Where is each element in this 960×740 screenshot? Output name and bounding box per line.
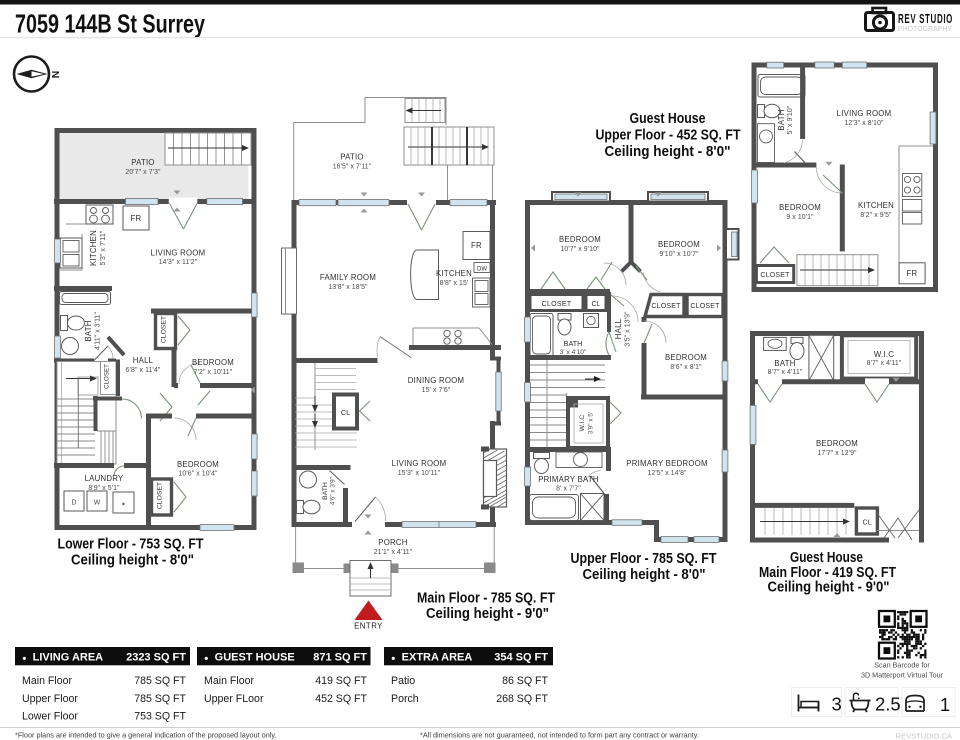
svg-text:KITCHEN: KITCHEN xyxy=(436,269,472,278)
svg-text:9 x 10'1": 9 x 10'1" xyxy=(786,214,814,221)
svg-text:LIVING ROOM: LIVING ROOM xyxy=(151,249,206,258)
svg-text:CLOSET: CLOSET xyxy=(161,316,168,343)
svg-text:N: N xyxy=(49,71,61,79)
svg-text:3: 3 xyxy=(832,694,842,715)
svg-text:12'5" x 14'8": 12'5" x 14'8" xyxy=(647,470,687,477)
svg-text:CLOSET: CLOSET xyxy=(651,303,681,310)
svg-text:CLOSET: CLOSET xyxy=(542,301,572,308)
svg-text:354 SQ FT: 354 SQ FT xyxy=(494,652,548,664)
svg-text:785 SQ FT: 785 SQ FT xyxy=(134,675,186,687)
svg-text:8'7" x 4'11": 8'7" x 4'11" xyxy=(768,369,803,376)
svg-text:3'9" x 5': 3'9" x 5' xyxy=(588,412,595,434)
svg-text:Main Floor: Main Floor xyxy=(22,675,73,687)
svg-text:6'8" x 11'4": 6'8" x 11'4" xyxy=(126,367,161,374)
svg-text:5'3" x 7'11": 5'3" x 7'11" xyxy=(100,230,107,265)
svg-text:BEDROOM: BEDROOM xyxy=(658,240,700,249)
svg-text:Ceiling height - 8'0": Ceiling height - 8'0" xyxy=(605,144,731,160)
svg-text:Upper Floor - 785 SQ. FT: Upper Floor - 785 SQ. FT xyxy=(571,551,717,567)
svg-text:13'8" x 18'5": 13'8" x 18'5" xyxy=(328,284,368,291)
svg-text:FAMILY ROOM: FAMILY ROOM xyxy=(320,273,376,282)
svg-text:7059 144B St Surrey: 7059 144B St Surrey xyxy=(15,9,205,39)
svg-text:D: D xyxy=(71,500,76,507)
svg-text:86 SQ FT: 86 SQ FT xyxy=(502,675,548,687)
svg-text:PATIO: PATIO xyxy=(131,158,155,167)
svg-text:KITCHEN: KITCHEN xyxy=(858,201,894,210)
svg-text:LIVING ROOM: LIVING ROOM xyxy=(392,459,447,468)
svg-text:HALL: HALL xyxy=(133,356,154,365)
svg-text:Ceiling height - 8'0": Ceiling height - 8'0" xyxy=(583,567,706,583)
svg-text:4'6" x 3'9": 4'6" x 3'9" xyxy=(330,477,337,505)
svg-text:Patio: Patio xyxy=(391,675,415,687)
svg-text:CL: CL xyxy=(592,301,601,308)
svg-text:LAUNDRY: LAUNDRY xyxy=(85,474,124,483)
svg-text:419 SQ FT: 419 SQ FT xyxy=(315,675,367,687)
svg-text:PRIMARY BEDROOM: PRIMARY BEDROOM xyxy=(626,459,707,468)
svg-text:Ceiling height - 9'0": Ceiling height - 9'0" xyxy=(426,606,549,622)
svg-text:ENTRY: ENTRY xyxy=(354,622,383,631)
svg-text:DINING ROOM: DINING ROOM xyxy=(408,376,464,385)
svg-text:Lower Floor: Lower Floor xyxy=(22,711,78,723)
svg-text:BEDROOM: BEDROOM xyxy=(779,203,821,212)
svg-text:PRIMARY BATH: PRIMARY BATH xyxy=(538,475,599,484)
svg-text:FR: FR xyxy=(471,241,482,250)
svg-text:BEDROOM: BEDROOM xyxy=(816,439,858,448)
svg-text:FR: FR xyxy=(131,214,142,223)
svg-text:9'10" x 10'7": 9'10" x 10'7" xyxy=(659,251,699,258)
svg-text:Main Floor: Main Floor xyxy=(204,675,255,687)
svg-text:CLOSET: CLOSET xyxy=(104,364,111,389)
svg-text:REVSTUDIO.CA: REVSTUDIO.CA xyxy=(896,732,952,740)
svg-text:Porch: Porch xyxy=(391,693,419,705)
svg-text:1: 1 xyxy=(940,694,950,715)
svg-text:8'6" x 8'1": 8'6" x 8'1" xyxy=(670,364,702,371)
svg-text:15'3" x 10'11": 15'3" x 10'11" xyxy=(398,470,441,477)
svg-text:Lower Floor - 753 SQ. FT: Lower Floor - 753 SQ. FT xyxy=(58,537,204,553)
svg-text:CL: CL xyxy=(863,520,872,527)
svg-text:2.5: 2.5 xyxy=(875,694,901,715)
svg-text:5' x 9'10": 5' x 9'10" xyxy=(787,105,794,134)
svg-text:PORCH: PORCH xyxy=(378,538,407,547)
svg-text:PATIO: PATIO xyxy=(340,153,364,162)
svg-text:CLOSET: CLOSET xyxy=(690,303,720,310)
svg-text:8'7" x 4'11": 8'7" x 4'11" xyxy=(867,360,902,367)
svg-text:W.I.C: W.I.C xyxy=(579,415,586,432)
svg-text:10'7" x 9'10": 10'7" x 9'10" xyxy=(560,246,600,253)
svg-text:Ceiling height - 9'0": Ceiling height - 9'0" xyxy=(768,580,890,596)
svg-text:CLOSET: CLOSET xyxy=(157,482,164,509)
svg-text:REV STUDIO: REV STUDIO xyxy=(898,12,953,26)
svg-text:8' x 7'7": 8' x 7'7" xyxy=(556,486,581,493)
svg-text:452 SQ FT: 452 SQ FT xyxy=(315,693,367,705)
svg-text:16'5" x 7'11": 16'5" x 7'11" xyxy=(333,164,372,171)
svg-text:● LIVING AREA: ● LIVING AREA xyxy=(22,652,103,664)
svg-text:Ceiling height - 8'0": Ceiling height - 8'0" xyxy=(71,553,194,569)
svg-text:12'3" x 8'10": 12'3" x 8'10" xyxy=(844,120,884,127)
svg-text:LIVING ROOM: LIVING ROOM xyxy=(837,109,892,118)
svg-text:Main Floor - 785 SQ. FT: Main Floor - 785 SQ. FT xyxy=(417,591,555,607)
svg-text:Upper Floor: Upper Floor xyxy=(22,693,78,705)
svg-text:4'11" x 3'11": 4'11" x 3'11" xyxy=(95,312,102,351)
svg-text:10'6" x 10'4": 10'6" x 10'4" xyxy=(178,471,218,478)
svg-text:*All dimensions are not guaran: *All dimensions are not guaranteed, not … xyxy=(420,731,699,740)
svg-text:785 SQ FT: 785 SQ FT xyxy=(134,693,186,705)
svg-text:268 SQ FT: 268 SQ FT xyxy=(496,693,548,705)
svg-text:PHOTOGRAPHY: PHOTOGRAPHY xyxy=(898,26,952,33)
svg-text:FR: FR xyxy=(907,269,918,278)
svg-text:DW: DW xyxy=(477,266,487,272)
svg-text:15' x 7'6": 15' x 7'6" xyxy=(422,387,451,394)
svg-text:753 SQ FT: 753 SQ FT xyxy=(134,711,186,723)
svg-text:HALL: HALL xyxy=(614,318,623,339)
svg-text:Upper FLoor: Upper FLoor xyxy=(204,693,264,705)
svg-text:CL: CL xyxy=(341,408,350,417)
svg-text:BATH: BATH xyxy=(84,320,93,341)
svg-text:8'2" x 9'5": 8'2" x 9'5" xyxy=(860,212,892,219)
svg-text:BATH: BATH xyxy=(777,109,786,130)
svg-text:● EXTRA AREA: ● EXTRA AREA xyxy=(391,652,472,664)
svg-text:Upper Floor - 452 SQ. FT: Upper Floor - 452 SQ. FT xyxy=(596,128,741,144)
svg-text:8'8" x 15': 8'8" x 15' xyxy=(440,280,469,287)
svg-text:20'7" x 7'3": 20'7" x 7'3" xyxy=(125,169,161,176)
svg-text:3'5" x 13'9": 3'5" x 13'9" xyxy=(625,311,632,347)
svg-text:KITCHEN: KITCHEN xyxy=(89,230,98,266)
svg-text:17'7" x 12'9": 17'7" x 12'9" xyxy=(817,450,857,457)
svg-text:21'1" x 4'11": 21'1" x 4'11" xyxy=(374,549,413,556)
svg-text:14'3" x 11'2": 14'3" x 11'2" xyxy=(159,259,198,266)
svg-text:BATH: BATH xyxy=(564,339,583,348)
svg-text:BEDROOM: BEDROOM xyxy=(665,353,707,362)
svg-text:Guest House: Guest House xyxy=(790,550,863,566)
svg-text:W.I.C: W.I.C xyxy=(874,350,894,359)
svg-text:BEDROOM: BEDROOM xyxy=(559,235,601,244)
svg-text:BEDROOM: BEDROOM xyxy=(192,358,234,367)
svg-text:● GUEST HOUSE: ● GUEST HOUSE xyxy=(204,652,295,664)
svg-text:3D Matterport Virtual Tour: 3D Matterport Virtual Tour xyxy=(861,671,944,680)
svg-text:W: W xyxy=(94,500,101,507)
svg-text:Guest House: Guest House xyxy=(630,111,706,127)
svg-text:*Floor plans are intended to g: *Floor plans are intended to give a gene… xyxy=(15,731,277,740)
svg-text:3' x 4'10": 3' x 4'10" xyxy=(560,349,587,356)
svg-text:Scan Barcode for: Scan Barcode for xyxy=(874,661,930,670)
svg-text:871 SQ FT: 871 SQ FT xyxy=(313,652,367,664)
svg-text:2323 SQ FT: 2323 SQ FT xyxy=(126,652,186,664)
svg-text:BATH: BATH xyxy=(322,482,329,500)
svg-text:BEDROOM: BEDROOM xyxy=(177,460,219,469)
svg-text:7'2" x 10'11": 7'2" x 10'11" xyxy=(194,369,233,376)
svg-text:CLOSET: CLOSET xyxy=(760,272,790,279)
svg-text:BATH: BATH xyxy=(774,359,795,368)
